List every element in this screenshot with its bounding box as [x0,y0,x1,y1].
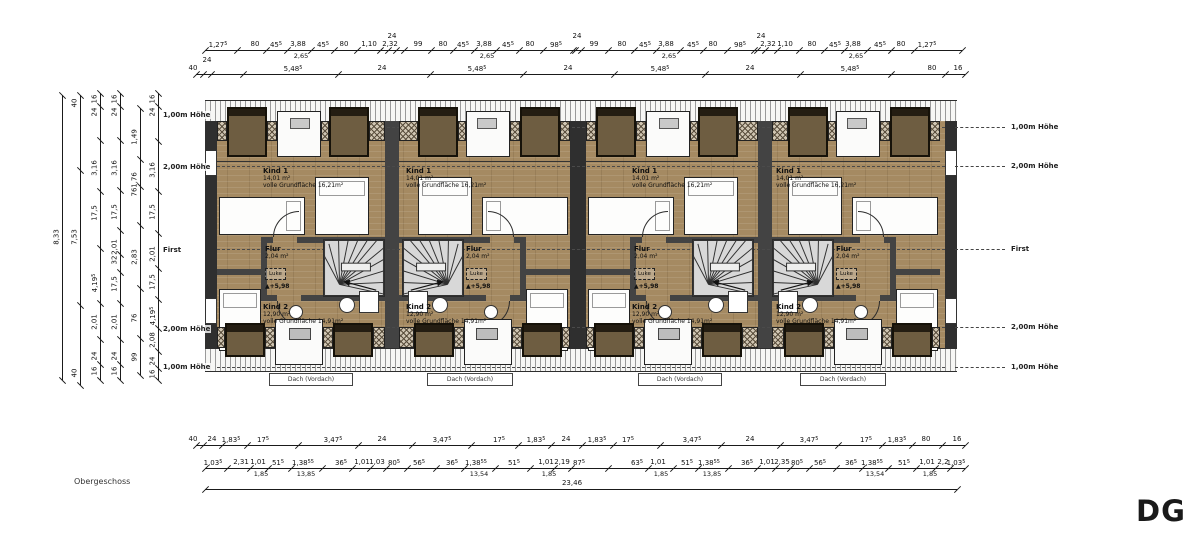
dim-label: 99 [590,41,599,48]
knee-wall-hatch [932,327,940,348]
dim-label: 515 [681,459,693,467]
dim-left-1-line [62,95,63,380]
dach-vordach-box: Dach (Vordach) [269,373,353,386]
dim-label: 4,195 [149,307,157,326]
dim-label: 1,01 [759,459,775,466]
dim-label: 455 [874,41,886,49]
unit-furniture: Kind 114,01 m²volle Grundfläche 16,21m²F… [217,121,385,348]
unit-2: Kind 114,01 m²volle Grundfläche 16,21m²F… [399,121,570,348]
dim-label: 3,475 [324,436,343,444]
dim-sublabel: 2,65 [662,53,676,60]
dim-label: 16 [112,95,119,104]
wardrobe [329,107,369,157]
dim-label: 24 [150,357,157,366]
dim-sublabel: 1,85 [254,471,268,478]
dim-label: 1,275 [918,41,937,49]
knee-wall-hatch [373,327,385,348]
dim-label: 2,32 [382,41,398,48]
wardrobe [522,323,562,357]
dim-label: 80 [709,41,718,48]
dim-bottom-2-line [205,468,965,469]
dim-sublabel: 1,85 [542,471,556,478]
dim-label: 1,835 [222,436,241,444]
wardrobe [892,323,932,357]
dim-label: 175 [622,436,634,444]
wardrobe [594,323,634,357]
dim-label: 24 [378,436,387,443]
floorplan-sheet: 1,275804553,882,65455801,102,32249980455… [0,0,1200,539]
dim-label: 1,3855 [465,459,487,467]
dim-label: 24 [378,65,387,72]
dim-label: 1,035 [947,459,966,467]
room-label-flur: Flur2,04 m²Luke▲+5,98 [466,245,522,299]
dim-top-1-tick [959,47,966,54]
dim-label: 4,195 [91,274,99,293]
dim-label: 875 [573,459,585,467]
dim-left-4-line [120,93,121,380]
dim-label: 40 [189,436,198,443]
window-left-bottom [205,298,217,324]
height-dash-right [955,327,1005,328]
height-label-right: 2,00m Höhe [1010,323,1059,331]
dim-label: 2,31 [233,459,249,466]
wall-segment [586,269,630,275]
dim-label: 80 [928,65,937,72]
room-label-kind2: Kind 212,90 m²volle Grundfläche 14,91m² [632,303,750,329]
room-label-kind1: Kind 114,01 m²volle Grundfläche 16,21m² [632,167,750,193]
dim-label: 515 [272,459,284,467]
dim-label: 1,01 [919,459,935,466]
knee-wall-hatch [634,327,644,348]
dim-left-2-line [80,95,81,385]
knee-wall-hatch [321,121,329,141]
dim-label: 24 [112,352,119,361]
dormer-desk [277,111,321,157]
dim-label: 805 [791,459,803,467]
knee-wall-hatch [265,327,275,348]
dim-label: 365 [446,459,458,467]
knee-wall-hatch [512,327,522,348]
dim-label: 76 [132,188,139,197]
dim-label: 8,33 [54,229,61,245]
dim-label: 1,835 [888,436,907,444]
dormer-desk [836,111,880,157]
unit-furniture: Kind 114,01 m²volle Grundfläche 16,21m²F… [586,121,758,348]
dim-label: 80 [340,41,349,48]
height-label-left: First [162,246,182,254]
interior-wall-line [399,161,570,162]
height-label-left: 2,00m Höhe [162,163,211,171]
height-label-right: 2,00m Höhe [1010,162,1059,170]
dim-left-6-line [158,93,159,380]
dim-label: 3,16 [112,160,119,176]
unit-3: Kind 114,01 m²volle Grundfläche 16,21m²F… [586,121,758,348]
dim-bottom-1-tick [962,442,969,449]
dim-label: 455 [829,41,841,49]
dim-label: 5,485 [468,65,487,73]
wardrobe [520,107,560,157]
dim-bottom-total-line [205,489,957,490]
dim-label: 2,19 [554,459,570,466]
knee-wall-hatch [217,327,225,348]
dim-label: 1,3855 [861,459,883,467]
wall-segment [896,269,940,275]
dormer-desk [466,111,510,157]
stair [772,239,834,297]
dim-sublabel: 2,65 [294,53,308,60]
dim-label: 1,275 [209,41,228,49]
knee-wall-hatch [930,121,940,141]
dim-label: 80 [897,41,906,48]
room-label-flur: Flur2,04 m²Luke▲+5,98 [634,245,690,299]
wardrobe [890,107,930,157]
unit-furniture: Kind 114,01 m²volle Grundfläche 16,21m²F… [772,121,940,348]
knee-wall-hatch [369,121,385,141]
knee-wall-hatch [690,121,698,141]
dim-label: 80 [439,41,448,48]
wardrobe [418,107,458,157]
dim-label: 455 [317,41,329,49]
room-label-kind2: Kind 212,90 m²volle Grundfläche 14,91m² [263,303,381,329]
dim-label: 5,485 [841,65,860,73]
dim-label: 16 [954,65,963,72]
dim-top-2-line [196,74,965,75]
dim-sublabel: 13,54 [470,471,489,478]
knee-wall-hatch [560,121,570,141]
dim-label: 80 [922,436,931,443]
dim-label: 2,08 [150,332,157,348]
dim-label: 805 [388,459,400,467]
dim-label: 365 [845,459,857,467]
dim-label: 24 [562,436,571,443]
dim-label: 1,01 [650,459,666,466]
dim-label: 1,76 [132,172,139,188]
dim-sublabel: 1,85 [654,471,668,478]
room-label-kind1: Kind 114,01 m²volle Grundfläche 16,21m² [263,167,381,193]
height-label-left: 1,00m Höhe [162,111,211,119]
party-wall-3 [758,121,772,348]
dim-label: 2,83 [132,249,139,265]
dim-label: 3,475 [683,436,702,444]
knee-wall-hatch [882,327,892,348]
dim-bottom-total-tick [954,486,961,493]
height-dash-right [955,166,1005,167]
dim-label: 99 [132,353,139,362]
knee-wall-hatch [586,327,594,348]
dim-label: 7,53 [72,229,79,245]
dim-sublabel: 13,85 [703,471,722,478]
dim-label: 23,46 [562,480,582,487]
dim-label: 5,485 [651,65,670,73]
dim-label: 455 [687,41,699,49]
dim-label: 5,485 [284,65,303,73]
dim-label: 365 [741,459,753,467]
height-label-right: First [1010,245,1030,253]
wall-segment [217,269,261,275]
dim-label: 1,03 [369,459,385,466]
wardrobe [596,107,636,157]
window-right-bottom [945,298,957,324]
dim-label: 17,5 [150,204,157,220]
dim-label: 1,035 [204,459,223,467]
dim-label: 175 [860,436,872,444]
height-dash-right [955,367,1005,368]
dim-label: 16 [150,95,157,104]
dim-label: 76 [132,314,139,323]
stair [402,239,464,297]
dim-label: 1,3855 [292,459,314,467]
knee-wall-hatch [828,121,836,141]
height-label-right: 1,00m Höhe [1010,123,1059,131]
height-dash-right [955,127,1005,128]
height-label-right: 1,00m Höhe [1010,363,1059,371]
dim-label: 515 [508,459,520,467]
dim-top-1-line [205,50,962,51]
wardrobe [225,323,265,357]
height-dash-right [955,249,1005,250]
dim-label: 3,16 [150,162,157,178]
dach-vordach-box: Dach (Vordach) [638,373,722,386]
dim-label: 24 [757,33,766,40]
dim-label: 455 [457,41,469,49]
dim-label: 635 [631,459,643,467]
dim-label: 175 [257,436,269,444]
dim-label: 1,49 [132,129,139,145]
knee-wall-hatch [742,327,758,348]
knee-wall-hatch [454,327,464,348]
dim-label: 2,01 [92,314,99,330]
dim-label: 40 [189,65,198,72]
wardrobe [698,107,738,157]
room-label-kind1: Kind 114,01 m²volle Grundfläche 16,21m² [406,167,524,193]
dach-vordach-box: Dach (Vordach) [800,373,886,386]
room-label-kind1: Kind 114,01 m²volle Grundfläche 16,21m² [776,167,894,193]
dim-label: 365 [335,459,347,467]
dim-label: 16 [112,367,119,376]
dim-sublabel: 2,65 [849,53,863,60]
dim-label: 24 [746,65,755,72]
dim-label: 17,5 [112,276,119,292]
dim-sublabel: 1,85 [923,471,937,478]
dim-label: 985 [550,41,562,49]
room-label-flur: Flur2,04 m²Luke▲+5,98 [836,245,892,299]
dim-left-5-line [140,108,141,375]
interior-wall-line [772,161,940,162]
room-label-kind2: Kind 212,90 m²volle Grundfläche 14,91m² [406,303,524,329]
dim-label: 24 [203,57,212,64]
knee-wall-hatch [323,327,333,348]
knee-wall-hatch [217,121,227,141]
dim-label: 1,3855 [698,459,720,467]
dim-label: 3,88 [476,41,492,48]
dim-label: 2,01 [150,246,157,262]
dim-label: 99 [414,41,423,48]
dim-sublabel: 2,65 [480,53,494,60]
wardrobe [788,107,828,157]
wardrobe [227,107,267,157]
dim-label: 17,5 [112,204,119,220]
party-wall-middle [570,121,586,348]
dim-label: 1,01 [354,459,370,466]
dim-label: 2,35 [774,459,790,466]
dim-label: 16 [92,95,99,104]
dim-label: 32 [112,256,119,265]
knee-wall-hatch [692,327,702,348]
dim-label: 24 [92,352,99,361]
dim-label: 985 [734,41,746,49]
dim-label: 3,88 [290,41,306,48]
dim-label: 16 [92,367,99,376]
stair [692,239,754,297]
knee-wall-hatch [772,327,784,348]
dim-sublabel: 13,54 [866,471,885,478]
dim-label: 24 [564,65,573,72]
dim-label: 1,10 [777,41,793,48]
dim-label: 1,01 [538,459,554,466]
dim-label: 40 [72,369,79,378]
knee-wall-hatch [880,121,890,141]
dim-label: 24 [388,33,397,40]
dim-label: 455 [502,41,514,49]
room-label-flur: Flur2,04 m²Luke▲+5,98 [265,245,321,299]
dim-label: 80 [251,41,260,48]
dim-top-2-tick [962,71,969,78]
dim-label: 455 [639,41,651,49]
dim-label: 455 [270,41,282,49]
dim-label: 16 [953,436,962,443]
knee-wall-hatch [399,327,414,348]
dim-label: 24 [573,33,582,40]
floor-label: Obergeschoss [74,477,130,486]
interior-wall-line [217,161,385,162]
unit-1: Kind 114,01 m²volle Grundfläche 16,21m²F… [217,121,385,348]
dim-label: 565 [814,459,826,467]
knee-wall-hatch [636,121,646,141]
dim-left-3-line [100,93,101,380]
dim-label: 1,835 [588,436,607,444]
dim-label: 2,01 [112,314,119,330]
window-right-top [945,150,957,176]
knee-wall-hatch [510,121,520,141]
dim-label: 2,32 [760,41,776,48]
dim-label: 24 [208,436,217,443]
dim-label: 80 [808,41,817,48]
dim-label: 3,475 [800,436,819,444]
knee-wall-hatch [458,121,466,141]
dim-label: 24 [150,108,157,117]
dim-label: 16 [150,370,157,379]
height-label-left: 1,00m Höhe [162,363,211,371]
dim-label: 1,01 [250,459,266,466]
dim-label: 80 [618,41,627,48]
interior-wall-line [586,161,758,162]
dim-label: 24 [746,436,755,443]
dim-label: 175 [493,436,505,444]
unit-furniture: Kind 114,01 m²volle Grundfläche 16,21m²F… [399,121,570,348]
room-label-kind2: Kind 212,90 m²volle Grundfläche 14,91m² [776,303,894,329]
wall-segment [526,269,570,275]
knee-wall-hatch [399,121,418,141]
dim-label: 17,5 [92,205,99,221]
dormer-desk [646,111,690,157]
dim-label: 565 [413,459,425,467]
knee-wall-hatch [586,121,596,141]
party-wall-1 [385,121,399,348]
dim-label: 1,835 [527,436,546,444]
dim-label: 80 [526,41,535,48]
dim-label: 3,475 [433,436,452,444]
dim-label: 24 [112,108,119,117]
stair [323,239,385,297]
dim-label: 17,5 [150,274,157,290]
dim-label: 3,16 [92,160,99,176]
dim-label: 1,10 [361,41,377,48]
knee-wall-hatch [267,121,277,141]
dim-label: 24 [92,108,99,117]
dach-vordach-box: Dach (Vordach) [427,373,513,386]
unit-4: Kind 114,01 m²volle Grundfläche 16,21m²F… [772,121,940,348]
sheet-label: DG [1136,494,1186,528]
dim-label: 3,88 [845,41,861,48]
height-line [217,367,945,368]
dim-label: 40 [72,99,79,108]
dim-label: 3,88 [658,41,674,48]
dim-label: 515 [898,459,910,467]
dim-label: 2,01 [112,239,119,255]
knee-wall-hatch [738,121,758,141]
dim-sublabel: 13,85 [297,471,316,478]
knee-wall-hatch [824,327,834,348]
knee-wall-hatch [562,327,570,348]
height-label-left: 2,00m Höhe [162,325,211,333]
knee-wall-hatch [772,121,788,141]
